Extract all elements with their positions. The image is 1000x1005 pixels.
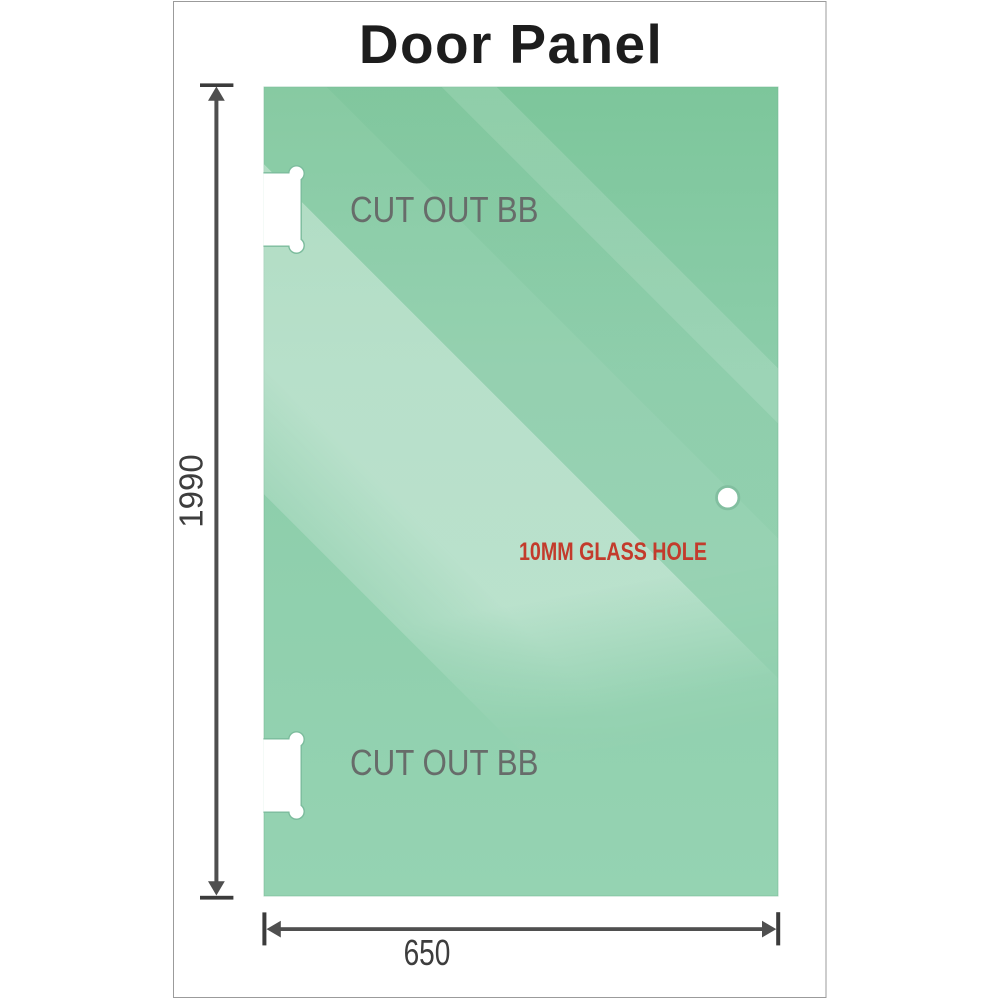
svg-text:CUT OUT BB: CUT OUT BB [350,190,539,231]
svg-text:650: 650 [404,933,451,973]
svg-text:1990: 1990 [173,454,210,527]
svg-text:Door Panel: Door Panel [359,13,663,75]
svg-text:CUT OUT BB: CUT OUT BB [350,743,539,784]
svg-text:10MM GLASS HOLE: 10MM GLASS HOLE [519,538,707,566]
